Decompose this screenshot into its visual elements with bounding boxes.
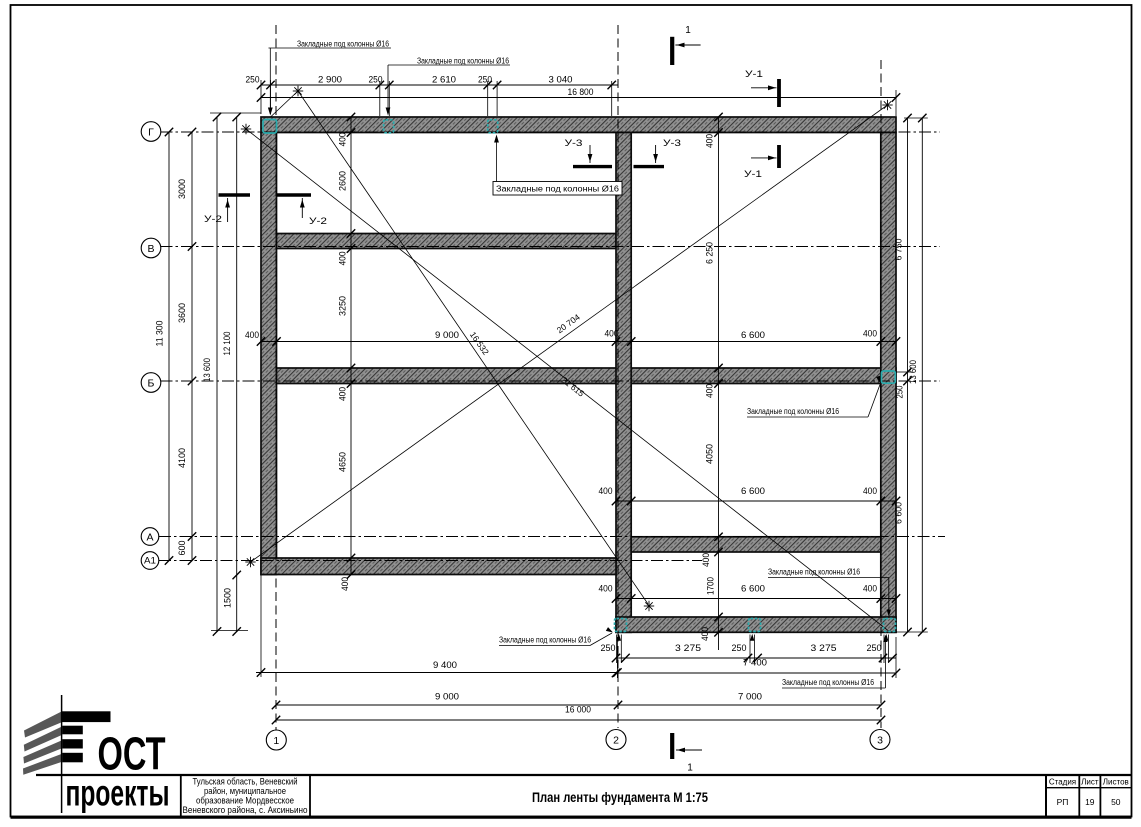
svg-text:19: 19 — [1085, 797, 1095, 807]
svg-text:6 600: 6 600 — [741, 330, 765, 340]
svg-text:У-3: У-3 — [663, 138, 681, 149]
svg-text:У-1: У-1 — [745, 69, 763, 80]
svg-text:400: 400 — [605, 329, 619, 339]
svg-text:А: А — [146, 531, 153, 543]
svg-text:250: 250 — [895, 385, 905, 398]
svg-text:250: 250 — [867, 643, 882, 653]
svg-text:13 600: 13 600 — [202, 358, 212, 382]
svg-text:образование Мордвесское: образование Мордвесское — [196, 795, 294, 805]
svg-text:2 900: 2 900 — [318, 75, 342, 85]
svg-text:600: 600 — [177, 540, 187, 555]
svg-text:400: 400 — [863, 486, 877, 496]
svg-text:А1: А1 — [144, 556, 156, 566]
svg-text:7 000: 7 000 — [738, 692, 762, 702]
svg-text:3 275: 3 275 — [811, 643, 837, 653]
svg-text:12 100: 12 100 — [222, 331, 232, 355]
svg-text:50: 50 — [1111, 797, 1121, 807]
svg-text:400: 400 — [599, 584, 613, 594]
svg-text:Лист: Лист — [1081, 778, 1099, 787]
svg-text:Стадия: Стадия — [1049, 778, 1076, 787]
svg-text:Тульская область, Веневский: Тульская область, Веневский — [193, 776, 298, 786]
svg-text:3000: 3000 — [177, 179, 187, 199]
svg-text:проекты: проекты — [66, 773, 170, 814]
svg-text:400: 400 — [338, 251, 348, 265]
svg-text:Листов: Листов — [1103, 778, 1129, 787]
svg-text:3250: 3250 — [338, 296, 348, 316]
svg-text:РП: РП — [1057, 797, 1069, 807]
svg-text:6 750: 6 750 — [894, 238, 904, 260]
svg-text:Закладные под колонны Ø16: Закладные под колонны Ø16 — [417, 57, 509, 66]
svg-text:4100: 4100 — [177, 448, 187, 468]
svg-text:3: 3 — [877, 734, 883, 746]
svg-text:Закладные под колонны Ø16: Закладные под колонны Ø16 — [768, 568, 860, 577]
svg-text:Закладные под колонны Ø16: Закладные под колонны Ø16 — [297, 40, 389, 49]
svg-text:У-2: У-2 — [204, 214, 222, 225]
svg-text:4650: 4650 — [338, 452, 348, 472]
svg-text:1: 1 — [687, 763, 693, 774]
svg-text:9 000: 9 000 — [435, 692, 459, 702]
svg-text:район, муниципальное: район, муниципальное — [204, 786, 286, 796]
svg-text:4050: 4050 — [705, 444, 715, 464]
svg-text:1500: 1500 — [223, 588, 233, 608]
svg-text:7 400: 7 400 — [743, 658, 767, 668]
svg-text:План ленты фундамента М 1:75: План ленты фундамента М 1:75 — [532, 790, 708, 805]
svg-text:400: 400 — [338, 387, 348, 401]
svg-text:16 000: 16 000 — [565, 705, 591, 715]
svg-text:6 250: 6 250 — [705, 242, 715, 264]
svg-text:6 600: 6 600 — [741, 486, 765, 496]
svg-text:16 800: 16 800 — [568, 87, 594, 97]
svg-text:У-2: У-2 — [309, 216, 327, 227]
svg-text:6 600: 6 600 — [741, 584, 765, 594]
svg-text:У-3: У-3 — [565, 138, 583, 149]
svg-text:250: 250 — [601, 643, 616, 653]
svg-text:В: В — [147, 243, 154, 255]
svg-text:250: 250 — [369, 75, 383, 85]
svg-text:400: 400 — [245, 330, 259, 340]
svg-text:250: 250 — [732, 643, 747, 653]
svg-text:250: 250 — [478, 75, 492, 85]
svg-text:2600: 2600 — [338, 171, 348, 191]
svg-text:1: 1 — [685, 25, 691, 36]
svg-text:3600: 3600 — [177, 303, 187, 323]
svg-text:9 400: 9 400 — [433, 660, 457, 670]
svg-text:400: 400 — [701, 553, 711, 567]
svg-text:250: 250 — [246, 75, 260, 85]
svg-text:400: 400 — [340, 577, 350, 591]
svg-text:Б: Б — [148, 377, 155, 389]
svg-text:400: 400 — [863, 584, 877, 594]
svg-text:400: 400 — [705, 134, 715, 148]
svg-text:Веневского района, с. Аксиньин: Веневского района, с. Аксиньино — [183, 805, 308, 815]
svg-text:400: 400 — [863, 329, 877, 339]
svg-text:У-1: У-1 — [744, 169, 762, 180]
svg-text:6 600: 6 600 — [894, 502, 904, 524]
svg-text:9 000: 9 000 — [435, 330, 459, 340]
svg-text:400: 400 — [338, 132, 348, 146]
svg-text:Г: Г — [148, 126, 154, 138]
svg-text:400: 400 — [599, 486, 613, 496]
svg-text:2: 2 — [613, 734, 619, 746]
svg-text:400: 400 — [700, 627, 710, 641]
svg-text:2 610: 2 610 — [432, 75, 456, 85]
svg-text:1700: 1700 — [706, 577, 716, 595]
svg-text:Закладные под колонны Ø16: Закладные под колонны Ø16 — [499, 636, 591, 645]
svg-text:3 275: 3 275 — [675, 643, 701, 653]
svg-text:11 300: 11 300 — [155, 320, 165, 346]
svg-text:Закладные под колонны Ø16: Закладные под колонны Ø16 — [496, 185, 619, 194]
svg-text:1: 1 — [273, 735, 279, 747]
svg-text:400: 400 — [705, 384, 715, 398]
svg-text:3 040: 3 040 — [549, 75, 573, 85]
svg-text:13 600: 13 600 — [908, 360, 918, 384]
svg-text:Закладные под колонны Ø16: Закладные под колонны Ø16 — [747, 407, 839, 416]
svg-text:Закладные под колонны Ø16: Закладные под колонны Ø16 — [782, 678, 874, 687]
